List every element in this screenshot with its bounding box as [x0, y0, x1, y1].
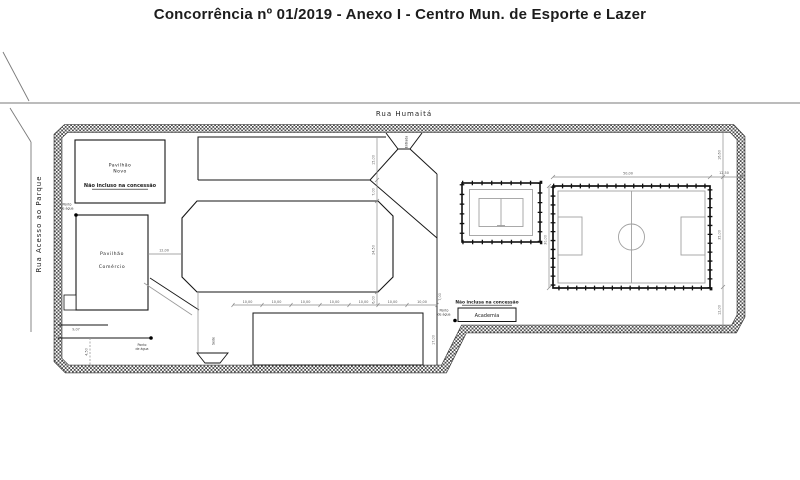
water-point-label: de água: [438, 313, 451, 317]
south-court-area: [253, 313, 423, 365]
soccer-field-goal-right: [681, 217, 705, 255]
dim-field-width: 50,00: [623, 172, 633, 176]
dim-south-height: 17,00: [432, 335, 436, 345]
water-point-dot: [74, 213, 78, 217]
dim-chain: 10,00: [272, 300, 282, 304]
site-plan-page: Concorrência nº 01/2019 - Anexo I - Cent…: [0, 0, 800, 480]
dim-field-gap: 12,50: [719, 171, 729, 175]
dim-oct-height: 24,50: [372, 245, 376, 255]
north-strip: [198, 137, 386, 180]
pavilhao-comercio-label-1: Pavilhão: [100, 251, 124, 257]
pavilhao-comercio-label-2: Comércio: [99, 263, 126, 270]
water-point-label: de água: [136, 347, 149, 351]
entrance-label: Entrada: [405, 136, 409, 149]
street-label-top: Rua Humaitá: [376, 110, 432, 118]
dimension-lines: [148, 127, 743, 332]
dim-chain: 10,00: [388, 300, 398, 304]
dim-walk-width: 7,00: [438, 293, 442, 301]
dim-chain: 10,00: [330, 300, 340, 304]
academia-label: Academia: [475, 313, 500, 319]
pavilhao-comercio-outline: [76, 215, 148, 310]
sede-label: Sede: [212, 337, 216, 345]
dim-field-height: 30,00: [544, 235, 548, 245]
sede-gate: Sede: [197, 337, 228, 363]
soccer-field: [553, 186, 710, 288]
pavilhao-novo: Pavilhão Novo Não incluso na concessão: [75, 140, 165, 203]
site-plan-drawing: Rua Humaitá Rua Acesso ao Parque Entrada…: [0, 0, 800, 480]
dim-right-bottom: 12,00: [718, 305, 722, 315]
pavilhao-novo-label-1: Pavilhão: [109, 163, 131, 169]
entrance-north: [370, 133, 437, 365]
dim-north-strip: 15,00: [372, 155, 376, 165]
water-point-dot: [149, 336, 153, 340]
dim-oct-bottom-gap: 6,00: [372, 296, 376, 304]
pavilhao-comercio-annex: [64, 295, 76, 310]
water-point-label: de água: [61, 207, 74, 211]
dim-chain: 10,00: [359, 300, 369, 304]
dim-chain: 10,00: [417, 300, 427, 304]
soccer-field-goal-left: [558, 217, 582, 255]
small-court: [462, 183, 540, 242]
street-corner-lower: [10, 108, 31, 142]
academia: Não inclusa na concessão Academia: [455, 300, 518, 322]
pavilhao-novo-label-2: Novo: [113, 169, 126, 175]
water-point-dot: [453, 319, 457, 323]
dim-left-b: 4,50: [85, 348, 89, 356]
dim-chain: 10,00: [243, 300, 253, 304]
central-track-octagon: [182, 201, 393, 292]
street-label-left: Rua Acesso ao Parque: [35, 175, 43, 272]
dim-right-mid: 35,00: [718, 230, 722, 240]
academia-note: Não inclusa na concessão: [455, 300, 518, 306]
dim-oct-top-gap: 7,00: [372, 188, 376, 196]
pavilhao-novo-note: Não incluso na concessão: [84, 183, 157, 189]
dim-left-a: 9,07: [72, 328, 80, 332]
street-corner-upper: [3, 52, 29, 101]
dim-oct-left-gap: 12,00: [159, 249, 169, 253]
dim-right-top: 16,60: [718, 150, 722, 160]
sede-gate-shape: [197, 353, 228, 363]
pavilhao-comercio: Pavilhão Comércio: [64, 215, 148, 310]
dim-chain: 10,00: [301, 300, 311, 304]
